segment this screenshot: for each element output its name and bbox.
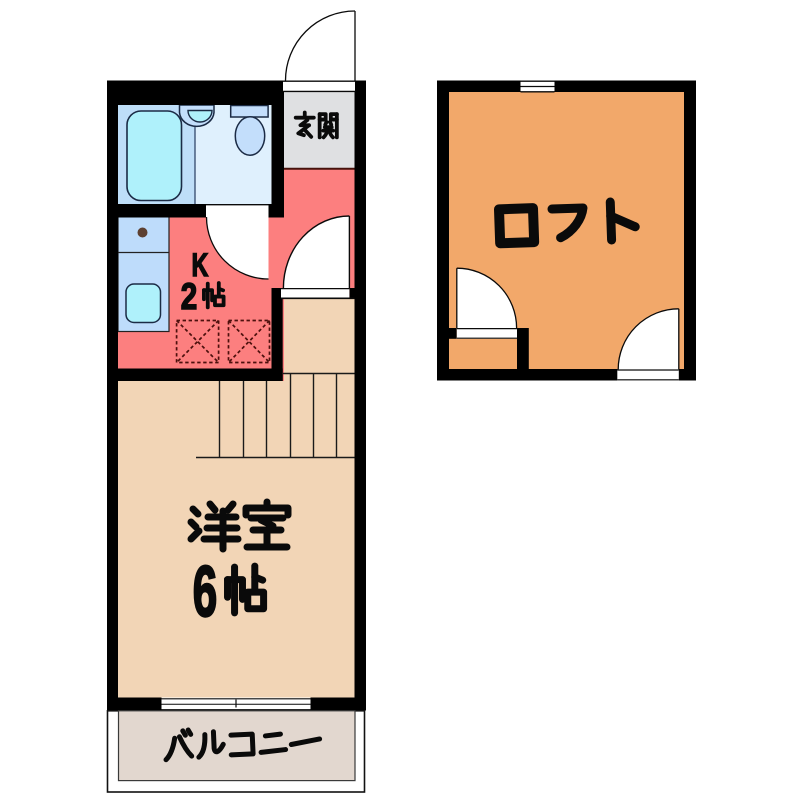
- svg-text:6: 6: [193, 552, 217, 631]
- svg-text:2: 2: [181, 277, 197, 318]
